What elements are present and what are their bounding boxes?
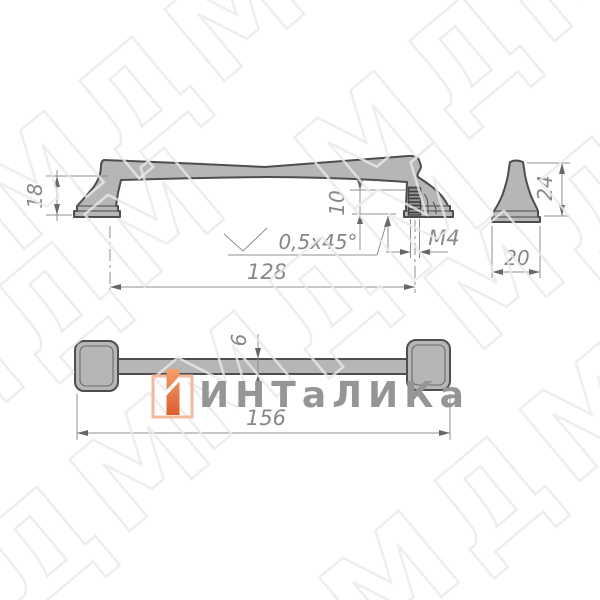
- dim-20: 20: [492, 226, 540, 278]
- dim-128-label: 128: [247, 260, 287, 284]
- chamfer-symbol: [224, 228, 267, 251]
- dim-20-label: 20: [504, 246, 529, 270]
- chamfer-note: 0,5x45°: [224, 216, 391, 255]
- thread-section: [409, 188, 421, 215]
- handle-front-outline: [74, 156, 453, 217]
- dim-m4: M4: [386, 219, 460, 258]
- drawing-canvas: 18 10 0,5x45°: [0, 0, 600, 600]
- m4-label: M4: [428, 226, 459, 250]
- chamfer-label: 0,5x45°: [278, 230, 357, 254]
- side-view: 24 20: [492, 161, 570, 279]
- dim-6-label: 6: [227, 334, 251, 347]
- dim-18-label: 18: [23, 183, 47, 208]
- intalika-logo: [146, 360, 202, 422]
- handle-technical-drawing: 18 10 0,5x45°: [0, 0, 600, 600]
- dim-24-label: 24: [533, 175, 557, 200]
- brand-watermark-text: ИНТаЛИКа: [199, 378, 470, 414]
- dim-128: 128: [110, 220, 415, 293]
- dim-10-label: 10: [325, 190, 349, 215]
- front-view: 18 10 0,5x45°: [23, 156, 460, 293]
